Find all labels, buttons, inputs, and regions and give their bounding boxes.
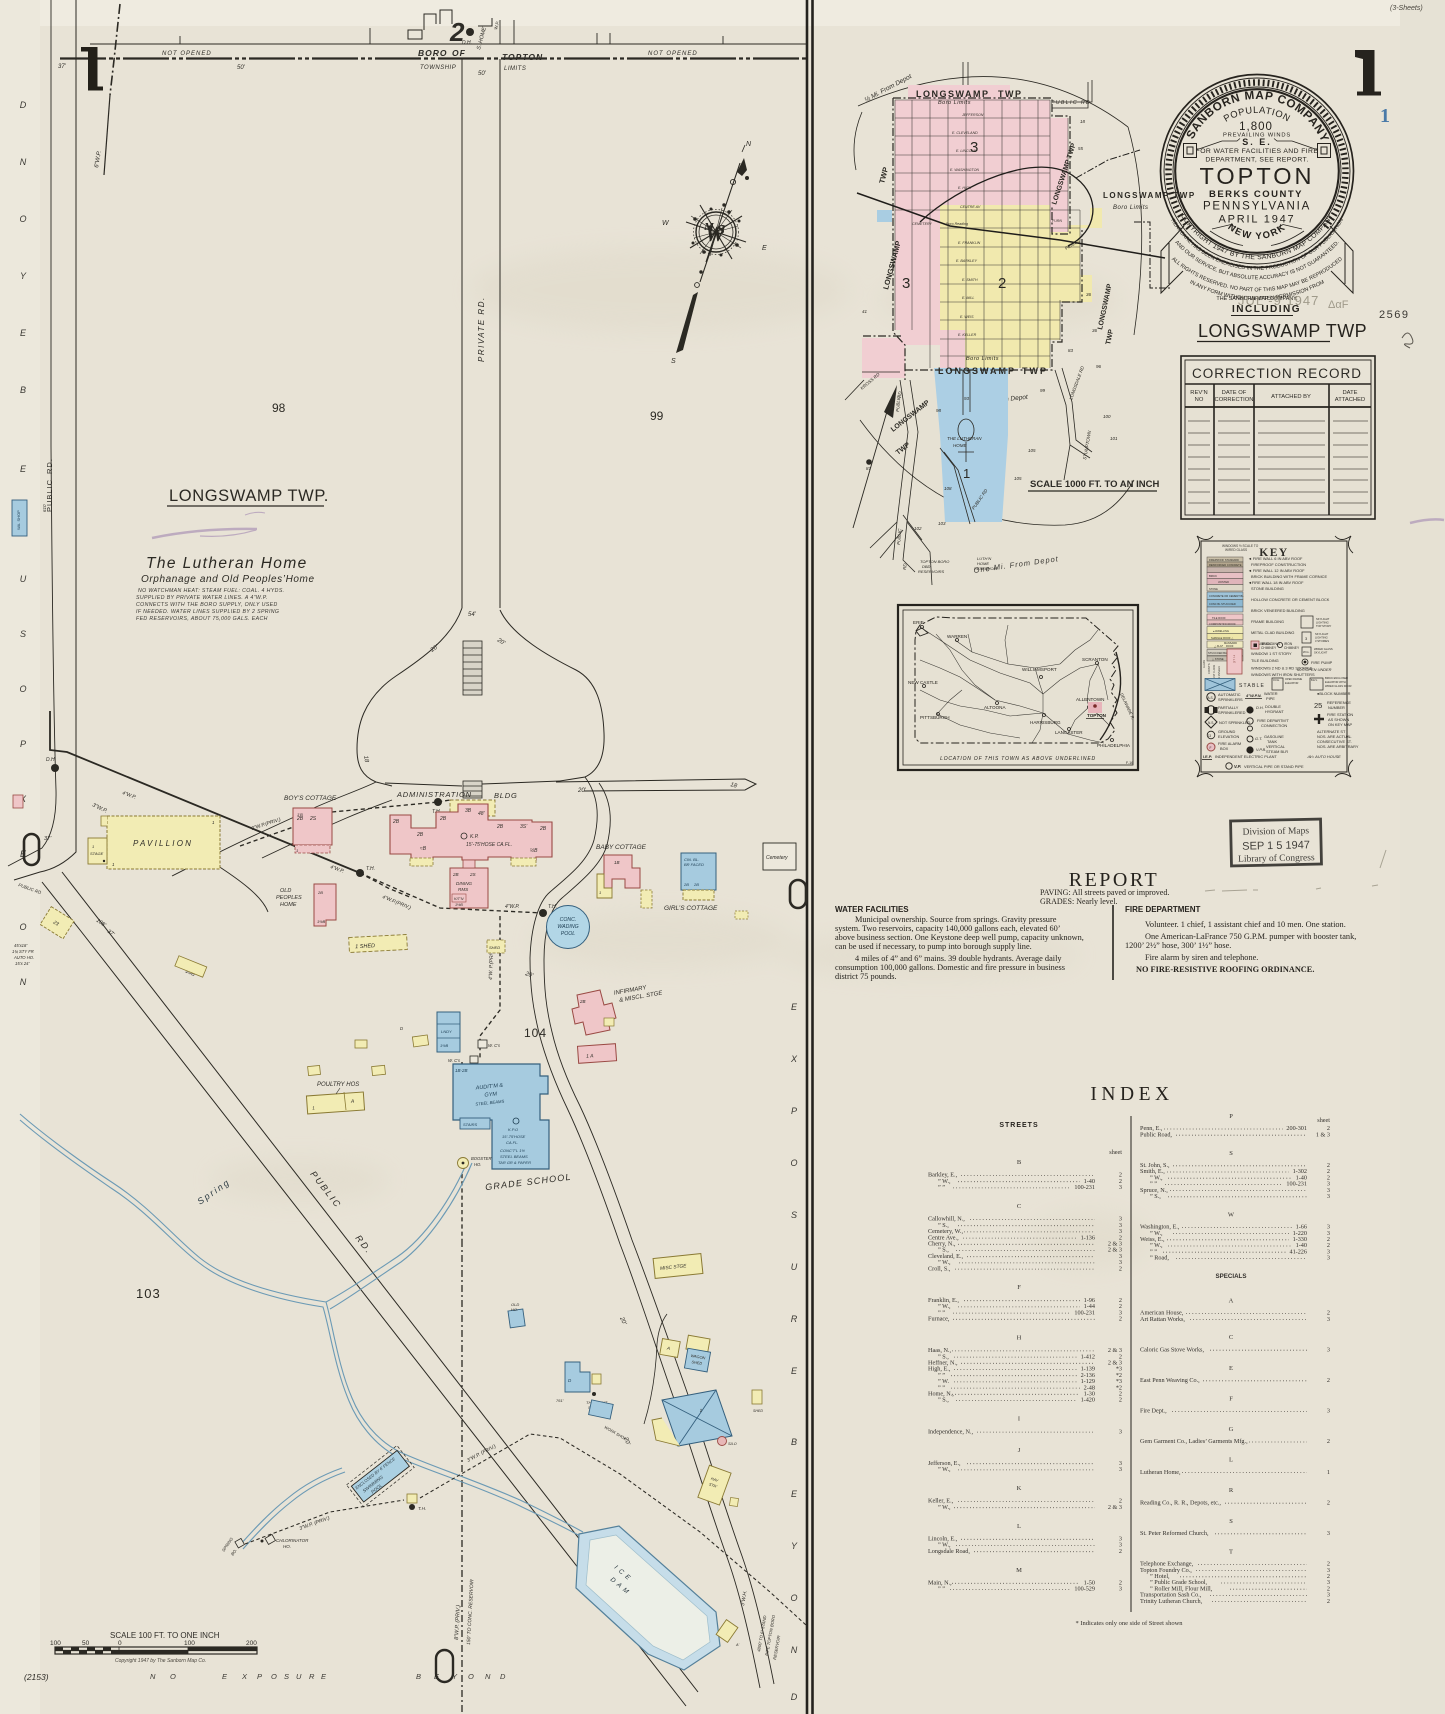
svg-text:F: F xyxy=(1210,746,1212,750)
svg-text:KIT’N: KIT’N xyxy=(454,897,464,901)
svg-text:SCRANTON: SCRANTON xyxy=(1082,657,1108,662)
svg-text:FRAME BUILDING: FRAME BUILDING xyxy=(1251,619,1284,624)
svg-text:100-231: 100-231 xyxy=(1074,1309,1095,1316)
svg-text:E. MILL: E. MILL xyxy=(962,296,974,300)
svg-text:Division of Maps: Division of Maps xyxy=(1242,825,1309,837)
svg-text:15’-75’HOSE: 15’-75’HOSE xyxy=(502,1134,526,1139)
svg-text:L: L xyxy=(1017,1523,1021,1530)
svg-text:ADMINISTRATION: ADMINISTRATION xyxy=(396,790,472,799)
svg-text:O: O xyxy=(790,1158,797,1168)
svg-text:48’: 48’ xyxy=(478,811,486,817)
svg-text:E: E xyxy=(791,1366,798,1376)
svg-text:D: D xyxy=(400,1026,403,1031)
svg-text:Art Rattan Works,: Art Rattan Works, xyxy=(1140,1316,1185,1323)
svg-text:RESERVOIRS: RESERVOIRS xyxy=(918,569,944,574)
svg-text:sheet: sheet xyxy=(1317,1117,1330,1124)
svg-text:RD: RD xyxy=(897,390,903,398)
svg-text:Furnace,: Furnace, xyxy=(928,1316,950,1323)
svg-text:SILO: SILO xyxy=(728,1442,737,1446)
svg-text:1ST FLOOR: 1ST FLOOR xyxy=(1213,664,1216,678)
svg-text:Independence, N.,: Independence, N., xyxy=(928,1428,973,1435)
svg-text:BRICK BUILDING WITH FRAME CORN: BRICK BUILDING WITH FRAME CORNICE xyxy=(1251,574,1327,579)
svg-text:N: N xyxy=(20,157,27,167)
svg-text:TOPTON: TOPTON xyxy=(502,52,543,62)
svg-text:PIPE: PIPE xyxy=(1266,696,1275,701)
svg-text:DATE OF: DATE OF xyxy=(1222,390,1247,396)
svg-text:STAIRS: STAIRS xyxy=(463,1122,477,1127)
svg-text:WINDOWS WITH IRON SHUTTERS: WINDOWS WITH IRON SHUTTERS xyxy=(1251,672,1315,677)
svg-text:N: N xyxy=(791,1645,798,1655)
svg-text:T I L E: T I L E xyxy=(1232,655,1236,663)
svg-text:3 STORIES: 3 STORIES xyxy=(1315,639,1329,643)
svg-text:Fire alarm by siren and teleph: Fire alarm by siren and telephone. xyxy=(1145,953,1258,962)
svg-text:103: 103 xyxy=(938,521,946,526)
svg-text:103: 103 xyxy=(136,1286,161,1301)
svg-text:WARREN: WARREN xyxy=(947,634,967,639)
svg-text:25: 25 xyxy=(1314,701,1322,710)
svg-text:WIRED GLASS: WIRED GLASS xyxy=(1314,647,1333,651)
svg-text:NOT SPRINKLED: NOT SPRINKLED xyxy=(1219,720,1250,725)
svg-text:100: 100 xyxy=(184,1640,195,1647)
svg-text:VERTICAL PIPE OR STAND PIPE: VERTICAL PIPE OR STAND PIPE xyxy=(1244,764,1304,769)
svg-text:TAR GR & PAPER: TAR GR & PAPER xyxy=(498,1160,531,1165)
svg-text:36: 36 xyxy=(1086,292,1092,297)
svg-text:2B: 2B xyxy=(693,882,699,887)
svg-text:R: R xyxy=(791,1314,798,1324)
svg-text:F: F xyxy=(1017,1284,1021,1291)
svg-text:OPEN FRAME: OPEN FRAME xyxy=(1285,677,1302,681)
svg-text:104: 104 xyxy=(524,1026,547,1040)
svg-text:O: O xyxy=(468,1672,474,1681)
svg-text:FIREPROOF STANDARD: FIREPROOF STANDARD xyxy=(1209,558,1239,562)
svg-text:ELEVATOR: ELEVATOR xyxy=(1285,681,1299,685)
svg-text:PRIVATE RD.: PRIVATE RD. xyxy=(477,296,486,362)
svg-text:SHED: SHED xyxy=(489,945,500,950)
svg-text:W. C’s: W. C’s xyxy=(448,1058,461,1063)
svg-text:DATE: DATE xyxy=(1342,390,1357,396)
svg-text:41-226: 41-226 xyxy=(1289,1248,1307,1255)
svg-text:55: 55 xyxy=(1078,146,1084,151)
svg-text:4”W.P.: 4”W.P. xyxy=(505,904,519,910)
svg-text:CHLORINATOR: CHLORINATOR xyxy=(276,1538,309,1543)
svg-text:△ FLAT: △ FLAT xyxy=(1213,644,1223,648)
svg-text:district 75 pounds.: district 75 pounds. xyxy=(835,972,897,981)
svg-text:18: 18 xyxy=(1080,119,1086,124)
svg-text:E. CLEVELAND: E. CLEVELAND xyxy=(952,131,978,135)
svg-text:2: 2 xyxy=(1327,1438,1330,1445)
svg-text:A’: A’ xyxy=(735,1643,739,1647)
svg-text:F-16: F-16 xyxy=(1126,761,1133,765)
svg-text:NO FIRE-RESISTIVE ROOFING O: NO FIRE-RESISTIVE ROOFING ORDINANCE. xyxy=(1136,965,1314,974)
svg-text:TILE ROOF: TILE ROOF xyxy=(1212,616,1226,620)
svg-text:A.S.: A.S. xyxy=(1208,696,1214,700)
svg-text:WIRED GLASS: WIRED GLASS xyxy=(1225,548,1247,552)
svg-text:IF NEEDED. WATER LINES SUPPLIE: IF NEEDED. WATER LINES SUPPLIED BY 2 SPR… xyxy=(136,609,279,615)
svg-text:CEMETERY: CEMETERY xyxy=(912,222,932,226)
svg-text:3: 3 xyxy=(1327,1316,1330,1323)
svg-text:SPRINKLERED: SPRINKLERED xyxy=(1218,710,1246,715)
svg-text:F: F xyxy=(1229,1395,1233,1402)
svg-text:CORRECTION RECORD: CORRECTION RECORD xyxy=(1192,366,1362,381)
svg-text:Longsdale Road,: Longsdale Road, xyxy=(928,1548,970,1555)
svg-text:Boro Reading: Boro Reading xyxy=(946,222,968,226)
svg-text:O: O xyxy=(271,1672,277,1681)
svg-text:WATER FACILITIES: WATER FACILITIES xyxy=(835,905,909,914)
svg-text:I.E.P.: I.E.P. xyxy=(1203,754,1212,759)
svg-text:1½B: 1½B xyxy=(440,1043,449,1048)
svg-text:Boro Limits: Boro Limits xyxy=(966,356,999,362)
svg-text:2B: 2B xyxy=(392,819,400,825)
svg-text:½B: ½B xyxy=(530,847,538,854)
svg-text:15’x 24’: 15’x 24’ xyxy=(15,961,30,966)
svg-text:Reading Co., R. R., Depots, et: Reading Co., R. R., Depots, etc., xyxy=(1140,1499,1221,1506)
svg-text:37’: 37’ xyxy=(58,64,67,70)
svg-text:⁄A⁄= AUTO HOUSE: ⁄A⁄= AUTO HOUSE xyxy=(1306,754,1341,759)
svg-text:100-231: 100-231 xyxy=(1074,1184,1095,1191)
svg-text:BABY COTTAGE: BABY COTTAGE xyxy=(596,844,647,851)
svg-text:13: 13 xyxy=(1208,734,1212,738)
svg-text:CONNECTS WITH THE BORO SUPPLY,: CONNECTS WITH THE BORO SUPPLY, ONLY USED xyxy=(136,602,278,608)
svg-text:PEOPLES: PEOPLES xyxy=(276,895,302,901)
svg-text:Trinity Lutheran Church,: Trinity Lutheran Church, xyxy=(1140,1598,1203,1605)
svg-text:LONGSWAMP TWP: LONGSWAMP TWP xyxy=(1198,321,1367,341)
svg-text:ATTACHED: ATTACHED xyxy=(1335,397,1365,403)
svg-text:LANCASTER: LANCASTER xyxy=(1055,730,1083,735)
svg-text:INDEX: INDEX xyxy=(1090,1084,1173,1105)
svg-text:I: I xyxy=(1018,1416,1020,1423)
svg-text:LIGHTING: LIGHTING xyxy=(1315,636,1328,640)
svg-text:93: 93 xyxy=(964,396,970,401)
svg-text:2 & 3: 2 & 3 xyxy=(1108,1504,1122,1511)
svg-text:FED RESERVOIRS, ABOUT 75,000 G: FED RESERVOIRS, ABOUT 75,000 GALS. EACH xyxy=(136,616,268,622)
svg-text:S: S xyxy=(791,1210,797,1220)
svg-text:OLD: OLD xyxy=(280,888,291,894)
svg-text:HYDRANT: HYDRANT xyxy=(1265,709,1284,714)
svg-text:PHILADELPHIA: PHILADELPHIA xyxy=(1097,743,1131,748)
svg-text:1¾ STY FR: 1¾ STY FR xyxy=(12,949,34,954)
svg-text:STONE BUILDING: STONE BUILDING xyxy=(1251,586,1284,591)
svg-text:U: U xyxy=(296,1672,302,1681)
svg-text:3: 3 xyxy=(1327,1408,1330,1415)
svg-text:610: 610 xyxy=(42,504,47,512)
svg-text:(3-Sheets): (3-Sheets) xyxy=(1390,5,1423,12)
svg-text:T.H.: T.H. xyxy=(366,866,375,872)
svg-text:●BLOCK NUMBER: ●BLOCK NUMBER xyxy=(1317,691,1351,696)
svg-text:P: P xyxy=(20,739,26,749)
svg-text:” W.,: ” W., xyxy=(938,1466,951,1473)
svg-text:Y: Y xyxy=(791,1541,798,1551)
svg-text:FURN: FURN xyxy=(1052,219,1062,223)
svg-text:1: 1 xyxy=(92,844,94,849)
svg-text:B.E.V.: B.E.V. xyxy=(1311,679,1318,682)
svg-text:STEEL BEAMS: STEEL BEAMS xyxy=(500,1154,528,1159)
svg-text:200: 200 xyxy=(246,1640,257,1647)
svg-text:41: 41 xyxy=(862,309,868,314)
svg-text:83: 83 xyxy=(1068,348,1074,353)
svg-text:PAVING: All streets paved or: PAVING: All streets paved or improved. xyxy=(1040,888,1169,897)
svg-text:D.H.: D.H. xyxy=(462,40,472,46)
svg-text:2: 2 xyxy=(1119,1265,1122,1272)
svg-text:SPECIALS: SPECIALS xyxy=(1216,1273,1247,1280)
svg-text:Copyright 1947 by The Sanborn: Copyright 1947 by The Sanborn Map Co. xyxy=(115,1658,206,1664)
svg-text:Boro Limits: Boro Limits xyxy=(1113,205,1149,211)
svg-text:HO.: HO. xyxy=(474,1162,481,1167)
svg-text:◄ FIRE WALL 6 IN ABV ROOF: ◄ FIRE WALL 6 IN ABV ROOF xyxy=(1248,556,1303,561)
svg-text:” ”: ” ” xyxy=(938,1184,945,1191)
svg-text:SCALE 100 FT. TO ONE INCH: SCALE 100 FT. TO ONE INCH xyxy=(110,1631,220,1640)
svg-text:3: 3 xyxy=(1119,1184,1122,1191)
svg-text:JEFFERSON: JEFFERSON xyxy=(961,113,984,117)
svg-text:K.P.O: K.P.O xyxy=(508,1127,518,1132)
svg-text:2B: 2B xyxy=(539,826,547,832)
svg-text:E: E xyxy=(791,1002,798,1012)
svg-text:C: C xyxy=(1229,1334,1233,1341)
svg-text:(2153): (2153) xyxy=(24,1672,49,1682)
svg-text:N: N xyxy=(150,1672,156,1681)
svg-text:1-136: 1-136 xyxy=(1081,1234,1095,1241)
svg-text:” S.,: ” S., xyxy=(1150,1193,1161,1200)
svg-text:15’-75’HOSE CA.FL.: 15’-75’HOSE CA.FL. xyxy=(466,842,512,848)
svg-text:O: O xyxy=(19,922,26,932)
svg-text:HO.: HO. xyxy=(283,1544,291,1549)
svg-text:102: 102 xyxy=(914,526,922,531)
svg-text:◄ FIRE WALL 12 IN ABV ROOF: ◄ FIRE WALL 12 IN ABV ROOF xyxy=(1248,568,1305,573)
svg-text:2: 2 xyxy=(1119,1397,1122,1404)
svg-text:D: D xyxy=(791,1692,798,1702)
svg-text:CONC BL STUCCOED: CONC BL STUCCOED xyxy=(1209,602,1236,606)
svg-text:RMS: RMS xyxy=(458,887,469,892)
svg-text:1: 1 xyxy=(1327,1469,1330,1476)
svg-text:THE LUTHERAN: THE LUTHERAN xyxy=(947,436,982,441)
svg-text:≈B: ≈B xyxy=(420,846,427,852)
svg-text:◄FIRE WALL 18 IN ABV ROOF: ◄FIRE WALL 18 IN ABV ROOF xyxy=(1248,580,1304,585)
svg-text:FOR WATER FACILITIES AND FIRE: FOR WATER FACILITIES AND FIRE xyxy=(1196,148,1319,155)
svg-text:2B: 2B xyxy=(439,816,447,822)
svg-text:O: O xyxy=(170,1672,176,1681)
svg-text:LNDY: LNDY xyxy=(441,1029,452,1034)
svg-text:ALTOONA: ALTOONA xyxy=(984,705,1006,710)
svg-text:2B: 2B xyxy=(416,832,424,838)
svg-text:L: L xyxy=(1229,1457,1233,1464)
svg-text:GLASS: GLASS xyxy=(1203,660,1206,668)
svg-text:BOX: BOX xyxy=(1220,746,1229,751)
svg-text:CORRECTION: CORRECTION xyxy=(1215,397,1254,403)
svg-text:NO: NO xyxy=(1195,397,1204,403)
svg-text:M: M xyxy=(703,221,715,233)
svg-text:1: 1 xyxy=(599,890,601,895)
svg-text:GRADES: Nearly level.: GRADES: Nearly level. xyxy=(1040,897,1118,906)
svg-text:100-529: 100-529 xyxy=(1074,1586,1095,1593)
svg-text:NO WATCHMAN HEAT: STEAM FUEL: NO WATCHMAN HEAT: STEAM FUEL: COAL. 4 HY… xyxy=(138,588,285,594)
svg-text:99: 99 xyxy=(650,409,664,423)
svg-text:3: 3 xyxy=(1327,1346,1330,1353)
svg-text:37’: 37’ xyxy=(44,836,52,842)
svg-text:Lutheran Home,: Lutheran Home, xyxy=(1140,1469,1181,1476)
svg-text:SPRINKLERS: SPRINKLERS xyxy=(1218,697,1243,702)
svg-text:100: 100 xyxy=(1103,414,1111,419)
svg-text:96: 96 xyxy=(1096,364,1102,369)
svg-text:LONGSWAMP TWP.: LONGSWAMP TWP. xyxy=(169,487,329,505)
svg-text:LIMITS: LIMITS xyxy=(504,66,526,72)
svg-text:GIRL’S COTTAGE: GIRL’S COTTAGE xyxy=(664,905,718,912)
svg-text:LONGSWAMP: LONGSWAMP xyxy=(938,366,1016,376)
svg-text:BOOSTER: BOOSTER xyxy=(471,1156,491,1161)
svg-text:M: M xyxy=(1016,1567,1022,1574)
svg-text:105: 105 xyxy=(1014,476,1022,481)
svg-text:W. C’s: W. C’s xyxy=(488,1043,501,1048)
svg-text:K: K xyxy=(1017,1485,1022,1492)
svg-text:RD.: RD. xyxy=(45,458,54,474)
svg-text:SHED: SHED xyxy=(753,1409,763,1413)
svg-text:S: S xyxy=(671,358,676,365)
svg-text:E. WASHINGTON: E. WASHINGTON xyxy=(950,168,979,172)
svg-text:1B: 1B xyxy=(614,860,620,865)
svg-text:W: W xyxy=(1228,1211,1235,1218)
svg-text:100-231: 100-231 xyxy=(1286,1181,1307,1188)
svg-text:99: 99 xyxy=(1040,388,1046,393)
svg-text:E: E xyxy=(1229,1365,1233,1372)
svg-text:98: 98 xyxy=(272,401,286,415)
svg-text:BRICK: BRICK xyxy=(1209,574,1217,578)
svg-text:CHIMNEY: CHIMNEY xyxy=(1261,646,1277,650)
svg-text:HOME: HOME xyxy=(953,443,967,448)
svg-text:BRICK VENEERED BUILDING: BRICK VENEERED BUILDING xyxy=(1251,608,1305,613)
svg-text:LONGSWAMP: LONGSWAMP xyxy=(916,89,990,99)
svg-text:4 miles of 4” and 6” mains.: 4 miles of 4” and 6” mains. 39 double hy… xyxy=(855,954,1062,963)
svg-text:D: D xyxy=(500,1672,506,1681)
svg-text:HOME: HOME xyxy=(280,902,297,908)
svg-text:ERIE: ERIE xyxy=(913,620,924,625)
svg-text:STABLE: STABLE xyxy=(1239,683,1265,689)
svg-text:98: 98 xyxy=(936,408,942,413)
svg-text:O: O xyxy=(19,214,26,224)
svg-text:St. Peter Reformed Church,: St. Peter Reformed Church, xyxy=(1140,1530,1209,1537)
svg-text:SKYLIGHT: SKYLIGHT xyxy=(1314,651,1328,655)
svg-text:O: O xyxy=(19,684,26,694)
svg-text:Y: Y xyxy=(20,271,27,281)
svg-text:” W.,: ” W., xyxy=(938,1504,951,1511)
svg-text:STONE: STONE xyxy=(1209,587,1218,591)
svg-text:2B: 2B xyxy=(452,872,459,877)
svg-text:CENTRE AV: CENTRE AV xyxy=(960,205,981,209)
svg-text:sheet: sheet xyxy=(1109,1149,1122,1156)
svg-text:C: C xyxy=(1017,1203,1021,1210)
svg-text:Croll, S.,: Croll, S., xyxy=(928,1265,951,1272)
svg-text:INDEPENDENT ELECTRIC PLANT: INDEPENDENT ELECTRIC PLANT xyxy=(1215,754,1277,759)
svg-text:SUPPLIED BY PRIVATE WATER LIN: SUPPLIED BY PRIVATE WATER LINES. A 4”W.P… xyxy=(136,595,268,601)
svg-text:1,800: 1,800 xyxy=(1239,121,1273,133)
svg-text:1 A: 1 A xyxy=(586,1053,594,1060)
svg-text:WILLIAMSPORT: WILLIAMSPORT xyxy=(1022,667,1057,672)
svg-text:50’: 50’ xyxy=(237,65,246,71)
svg-text:ELEVATOR WITH: ELEVATOR WITH xyxy=(1325,680,1346,684)
svg-text:LONGSWAMP TWP: LONGSWAMP TWP xyxy=(1103,191,1196,200)
svg-text:100: 100 xyxy=(50,1640,61,1647)
svg-text:1: 1 xyxy=(1380,105,1390,127)
svg-text:Volunteer. 1 chief, 1 assis: Volunteer. 1 chief, 1 assistant chief an… xyxy=(1145,920,1346,929)
svg-text:REINFORCED CONCRETE: REINFORCED CONCRETE xyxy=(1209,563,1242,567)
svg-text:200-301: 200-301 xyxy=(1286,1125,1307,1132)
svg-text:P: P xyxy=(1229,1113,1233,1120)
svg-text:system. Two reservoirs, ca: system. Two reservoirs, capacity 140,000… xyxy=(835,924,1061,933)
svg-text:N.S.: N.S. xyxy=(1208,721,1214,725)
svg-text:BORO: BORO xyxy=(418,48,448,58)
svg-text:The Lutheran Home: The Lutheran Home xyxy=(146,555,308,572)
svg-text:1 & 3: 1 & 3 xyxy=(1316,1131,1330,1138)
svg-text:H: H xyxy=(1017,1334,1022,1341)
svg-text:TWP: TWP xyxy=(998,89,1023,99)
svg-text:JOISTED: JOISTED xyxy=(1218,580,1229,584)
svg-text:3: 3 xyxy=(1327,1530,1330,1537)
svg-text:OF: OF xyxy=(452,48,466,58)
svg-text:BRICK ENCLOSED: BRICK ENCLOSED xyxy=(1325,676,1348,680)
svg-text:TOPTON: TOPTON xyxy=(1199,163,1314,189)
svg-text:E: E xyxy=(20,328,27,338)
svg-text:ON KEY MAP: ON KEY MAP xyxy=(1328,722,1353,727)
svg-text:△ STONE: △ STONE xyxy=(1212,657,1224,661)
svg-text:45’x18’: 45’x18’ xyxy=(14,943,27,948)
svg-text:Fire Dept.,: Fire Dept., xyxy=(1140,1408,1167,1415)
svg-text:STAGE: STAGE xyxy=(90,851,104,856)
svg-text:WINDOWS 2 ND & 3 RD STORIES: WINDOWS 2 ND & 3 RD STORIES xyxy=(1251,666,1313,671)
svg-text:ROOF: ROOF xyxy=(1226,644,1234,648)
svg-text:E. SMITH: E. SMITH xyxy=(962,278,978,282)
svg-text:B: B xyxy=(1017,1159,1022,1166)
svg-text:50: 50 xyxy=(82,1640,90,1647)
svg-text:CONC.: CONC. xyxy=(560,917,577,923)
svg-text:E. HIGH: E. HIGH xyxy=(958,186,972,190)
svg-text:O: O xyxy=(790,1593,797,1603)
svg-text:TWP: TWP xyxy=(1022,366,1048,376)
svg-text:E. BARKLEY: E. BARKLEY xyxy=(956,259,978,263)
svg-text:CONST’N: CONST’N xyxy=(1208,663,1211,674)
svg-text:X: X xyxy=(241,1672,248,1681)
svg-text:Gem Garment Co., Ladies’ Garme: Gem Garment Co., Ladies’ Garments Mfg., xyxy=(1140,1438,1248,1445)
svg-text:101: 101 xyxy=(1110,436,1118,441)
svg-text:P: P xyxy=(791,1106,797,1116)
svg-text:above business section. One K: above business section. One Keystone dee… xyxy=(835,933,1084,942)
svg-text:NOS. ARE ARBITRARY: NOS. ARE ARBITRARY xyxy=(1317,744,1359,749)
svg-text:1-420: 1-420 xyxy=(1081,1397,1095,1404)
svg-text:BLDG: BLDG xyxy=(494,791,518,800)
svg-text:V.P.: V.P. xyxy=(1234,764,1241,769)
svg-text:PITTSBURGH: PITTSBURGH xyxy=(920,715,950,720)
svg-text:2: 2 xyxy=(1327,1598,1330,1605)
svg-text:D.H.: D.H. xyxy=(46,757,56,763)
svg-text:” ”: ” ” xyxy=(938,1586,945,1593)
svg-text:S: S xyxy=(20,629,26,639)
svg-text:S: S xyxy=(1229,1518,1233,1525)
svg-text:METAL CLAD BUILDING: METAL CLAD BUILDING xyxy=(1251,630,1294,635)
svg-text:3S’: 3S’ xyxy=(520,824,528,830)
svg-text:1B-2B: 1B-2B xyxy=(455,1068,468,1073)
svg-text:SCALE 1000 FT. TO AN INCH: SCALE 1000 FT. TO AN INCH xyxy=(1030,479,1159,490)
svg-text:V.P.B.: V.P.B. xyxy=(1256,747,1266,752)
svg-text:E: E xyxy=(791,1489,798,1499)
svg-text:E. WEIS: E. WEIS xyxy=(960,315,974,319)
svg-text:REV’N: REV’N xyxy=(1190,390,1207,396)
svg-text:RD: RD xyxy=(902,562,908,570)
svg-text:LIGHTING: LIGHTING xyxy=(1316,621,1329,625)
svg-text:CONCRETE OR CEMENT BL: CONCRETE OR CEMENT BL xyxy=(1209,594,1244,598)
svg-text:54’: 54’ xyxy=(468,612,477,618)
svg-text:TOP STORY: TOP STORY xyxy=(1316,624,1332,628)
svg-text:36: 36 xyxy=(1092,328,1098,333)
svg-text:BR FACED: BR FACED xyxy=(684,862,704,867)
svg-text:ATTACHED BY: ATTACHED BY xyxy=(1271,394,1311,400)
svg-text:S: S xyxy=(284,1672,289,1681)
svg-text:2B: 2B xyxy=(579,999,586,1004)
